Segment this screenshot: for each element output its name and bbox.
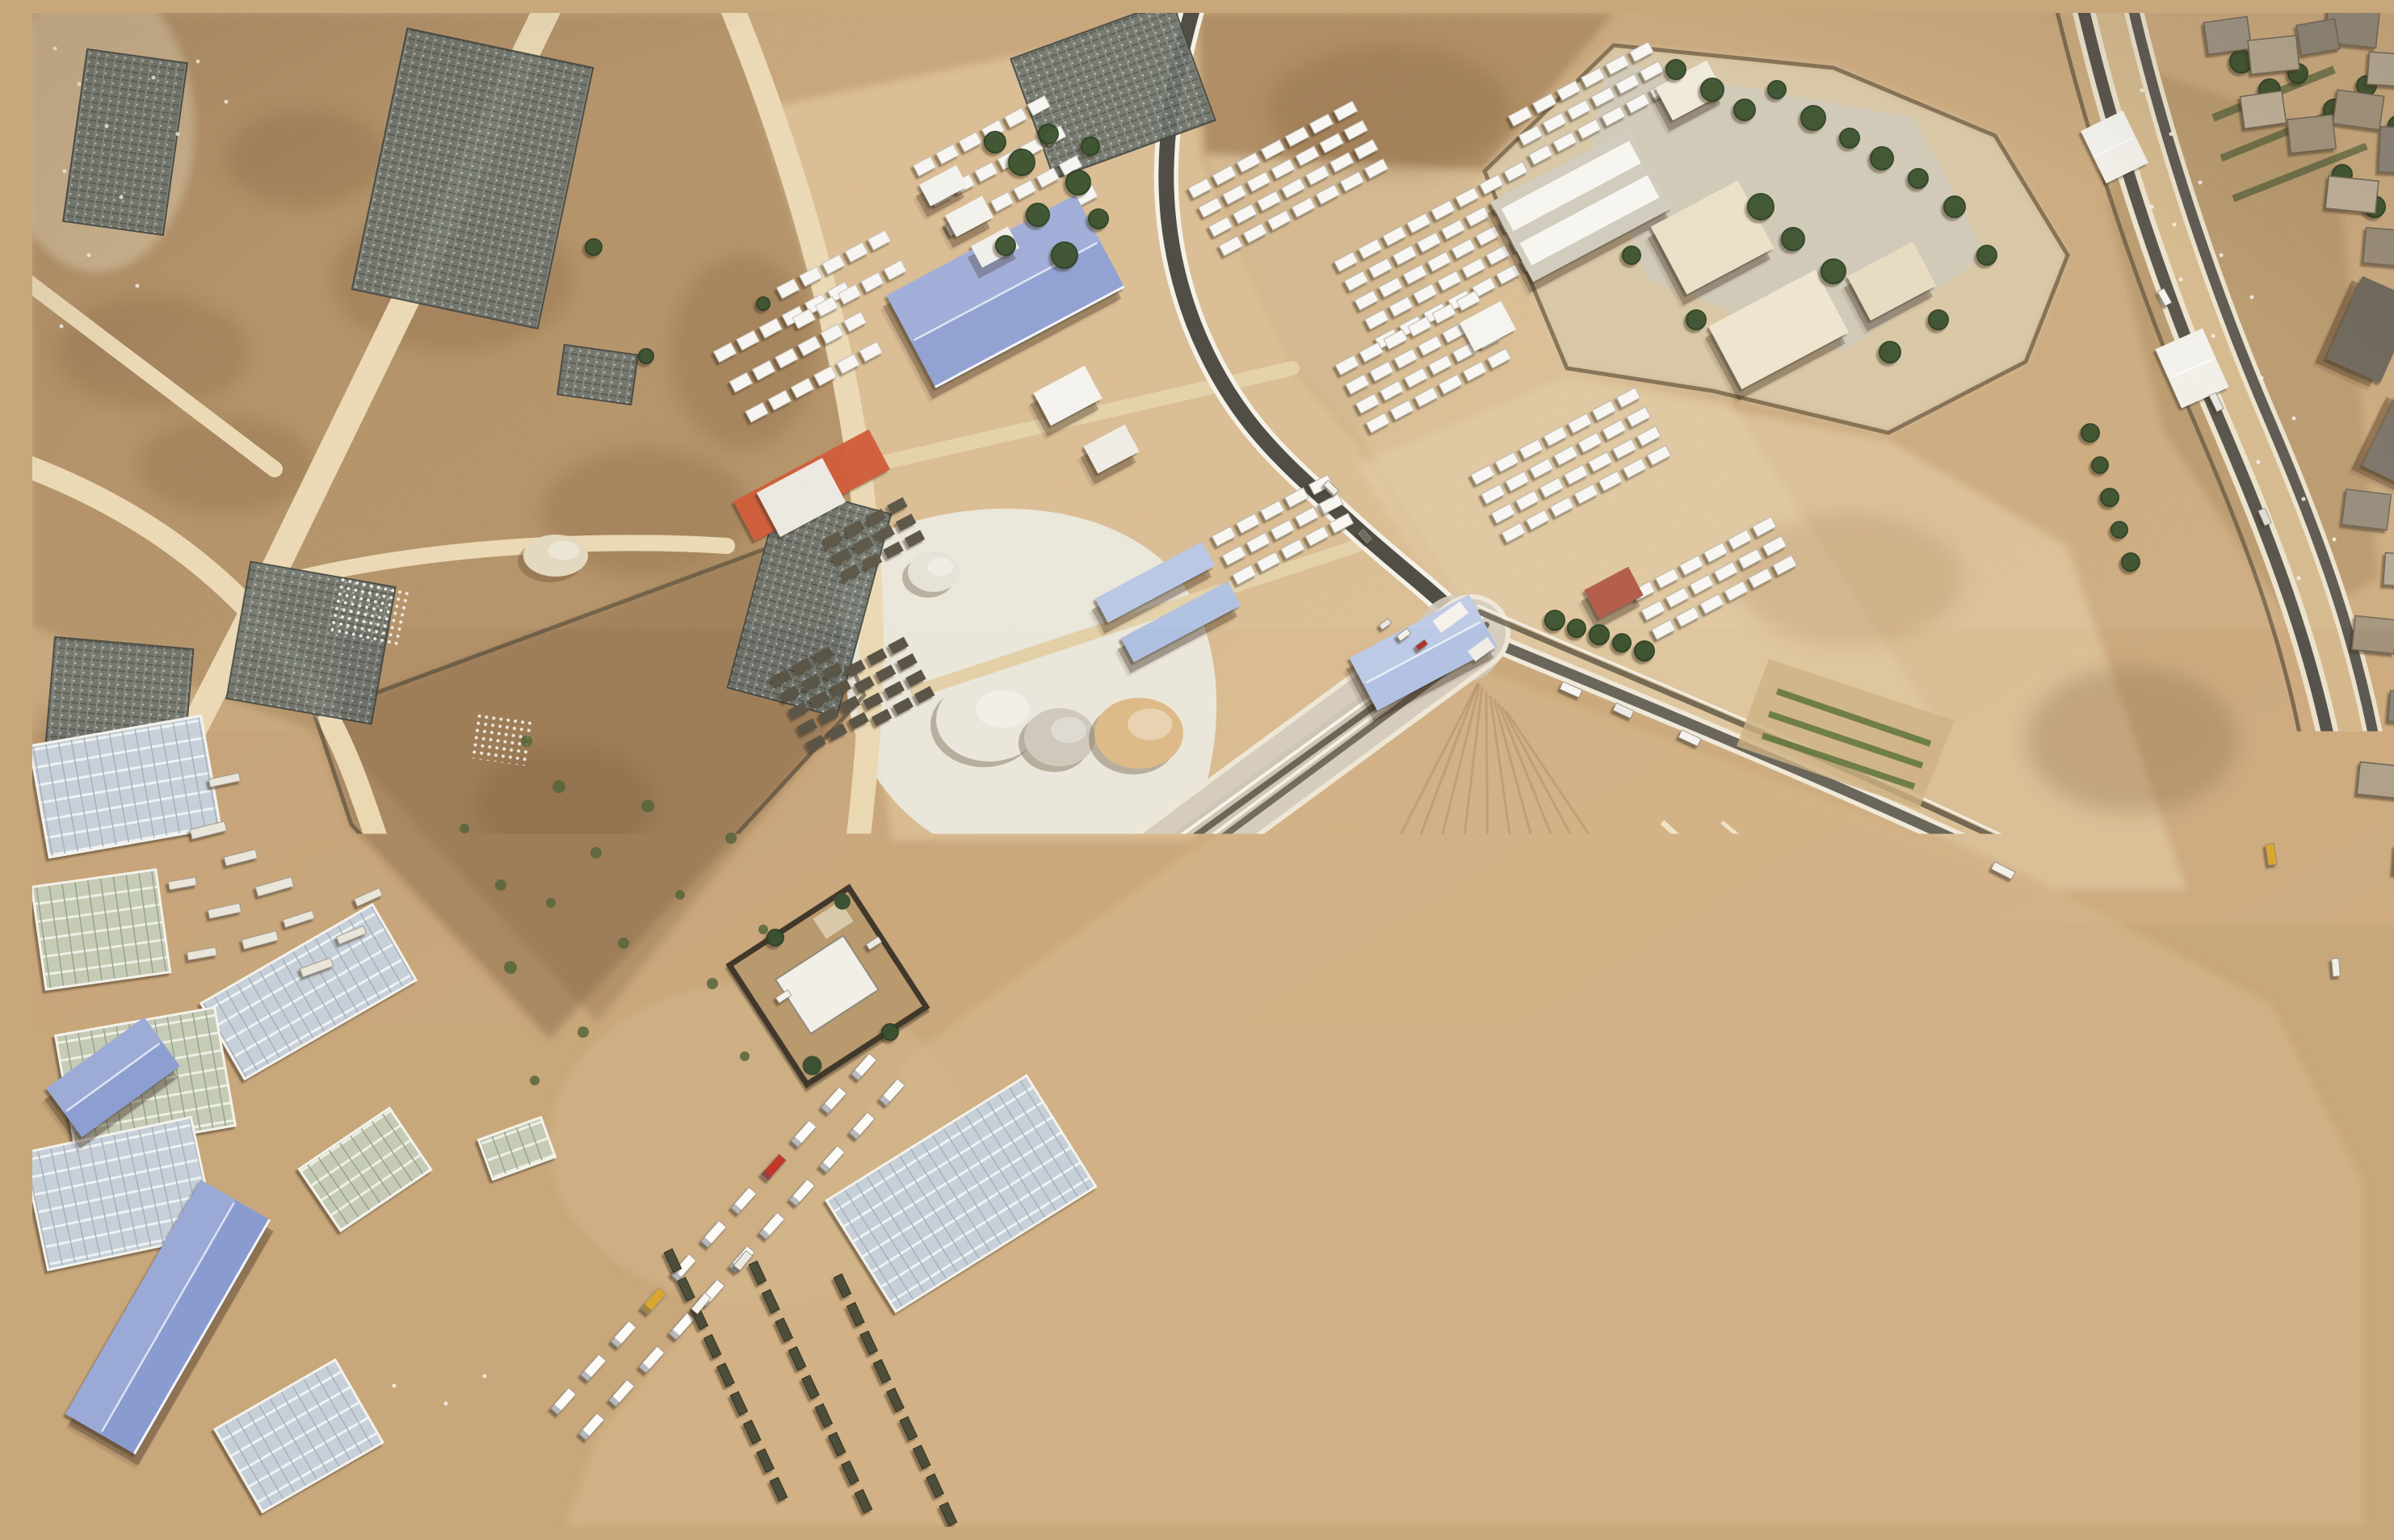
- satellite-photo-border-crossing: [32, 13, 2394, 1527]
- satellite-canvas: [32, 13, 2394, 1527]
- vignette: [32, 13, 2394, 1527]
